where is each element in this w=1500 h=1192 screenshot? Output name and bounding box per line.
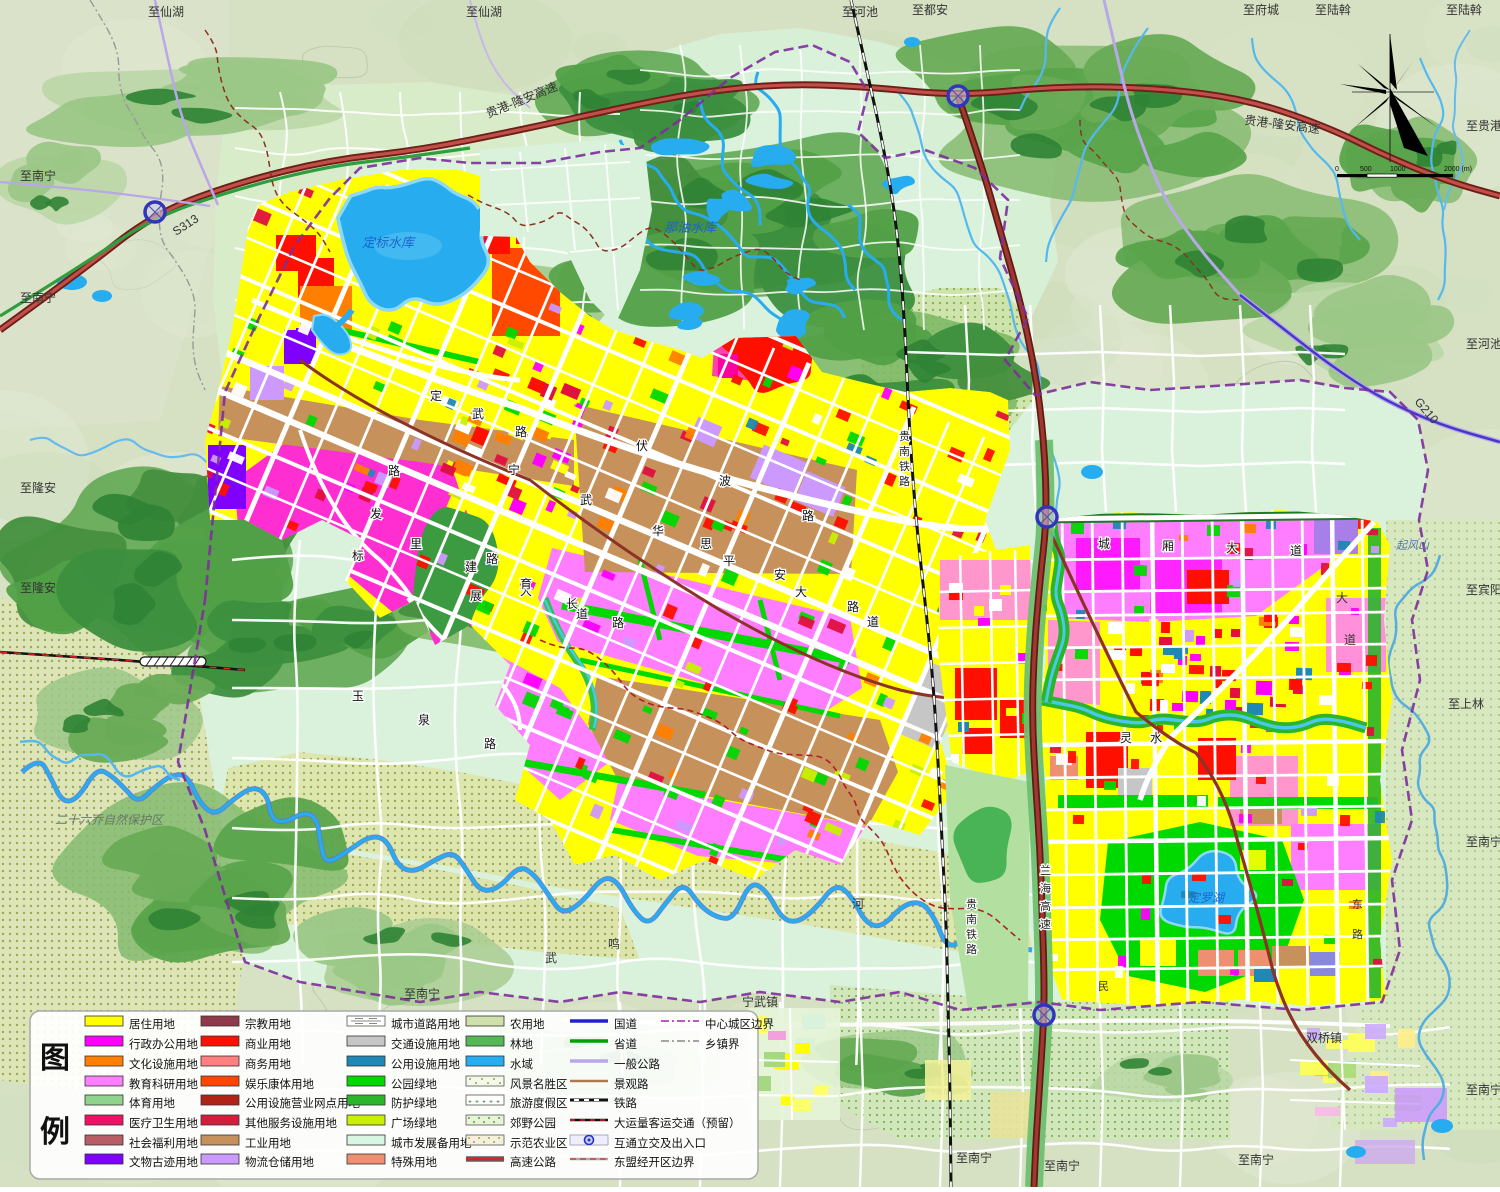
- svg-text:工业用地: 工业用地: [245, 1137, 291, 1150]
- svg-text:路: 路: [966, 943, 977, 956]
- svg-text:公用设施营业网点用地: 公用设施营业网点用地: [245, 1096, 360, 1110]
- svg-text:城: 城: [1098, 537, 1110, 551]
- svg-text:至仙湖: 至仙湖: [148, 4, 184, 19]
- svg-text:至南宁: 至南宁: [956, 1150, 992, 1165]
- svg-text:教育科研用地: 教育科研用地: [129, 1077, 198, 1091]
- svg-text:定标水库: 定标水库: [362, 235, 416, 250]
- svg-text:道: 道: [1290, 544, 1302, 558]
- svg-text:铁: 铁: [966, 928, 977, 941]
- svg-text:建: 建: [465, 560, 477, 574]
- svg-text:农用地: 农用地: [510, 1017, 545, 1031]
- svg-text:至南宁: 至南宁: [1238, 1152, 1274, 1167]
- svg-text:文物古迹用地: 文物古迹用地: [129, 1155, 198, 1169]
- svg-text:至隆安: 至隆安: [20, 580, 56, 595]
- svg-text:路: 路: [388, 463, 400, 478]
- svg-text:体育用地: 体育用地: [129, 1096, 175, 1110]
- svg-text:至宾阳: 至宾阳: [1466, 582, 1500, 597]
- svg-text:安: 安: [774, 567, 786, 582]
- svg-text:路: 路: [515, 424, 527, 439]
- svg-text:灵: 灵: [1120, 731, 1132, 745]
- svg-text:铁路: 铁路: [614, 1096, 637, 1110]
- svg-text:郊野公园: 郊野公园: [510, 1117, 556, 1130]
- svg-text:旅游度假区: 旅游度假区: [510, 1096, 568, 1110]
- svg-text:广场绿地: 广场绿地: [391, 1116, 437, 1130]
- svg-text:至南宁: 至南宁: [1044, 1158, 1080, 1173]
- svg-text:至府城: 至府城: [1243, 2, 1279, 17]
- svg-text:南: 南: [899, 445, 910, 458]
- svg-text:2000 (m): 2000 (m): [1444, 166, 1472, 173]
- svg-text:乡镇界: 乡镇界: [705, 1037, 740, 1051]
- svg-text:展: 展: [470, 589, 482, 603]
- svg-text:武: 武: [580, 493, 592, 507]
- svg-text:医疗卫生用地: 医疗卫生用地: [129, 1116, 198, 1130]
- svg-text:铁: 铁: [899, 460, 910, 473]
- svg-text:路: 路: [612, 615, 624, 630]
- svg-text:防护绿地: 防护绿地: [391, 1096, 437, 1110]
- svg-text:大: 大: [795, 585, 807, 599]
- svg-text:里: 里: [410, 537, 422, 551]
- svg-text:大: 大: [1226, 541, 1238, 555]
- svg-text:文化设施用地: 文化设施用地: [129, 1057, 198, 1071]
- svg-text:思: 思: [700, 537, 712, 551]
- svg-text:行政办公用地: 行政办公用地: [129, 1037, 198, 1051]
- svg-text:水域: 水域: [510, 1058, 533, 1071]
- svg-text:至南宁: 至南宁: [20, 168, 56, 183]
- svg-text:至陆斡: 至陆斡: [1446, 2, 1482, 17]
- svg-text:路: 路: [802, 508, 814, 523]
- svg-text:公用设施用地: 公用设施用地: [391, 1058, 460, 1071]
- svg-text:一般公路: 一般公路: [614, 1057, 660, 1071]
- svg-text:水: 水: [1150, 731, 1162, 745]
- svg-text:至南宁: 至南宁: [1466, 1082, 1500, 1097]
- svg-text:中心城区边界: 中心城区边界: [705, 1018, 774, 1031]
- svg-text:至南宁: 至南宁: [1466, 834, 1500, 849]
- svg-text:至隆安: 至隆安: [20, 480, 56, 495]
- svg-text:平: 平: [723, 554, 735, 568]
- svg-text:南: 南: [966, 913, 977, 926]
- svg-text:居住用地: 居住用地: [129, 1017, 175, 1031]
- svg-text:城市道路用地: 城市道路用地: [391, 1017, 460, 1031]
- svg-text:商业用地: 商业用地: [245, 1037, 291, 1051]
- svg-text:鸣: 鸣: [608, 936, 620, 951]
- svg-text:0: 0: [1335, 166, 1339, 173]
- svg-text:示范农业区: 示范农业区: [510, 1136, 568, 1150]
- svg-text:贵: 贵: [899, 430, 910, 443]
- svg-text:省道: 省道: [614, 1037, 637, 1051]
- svg-text:公园绿地: 公园绿地: [391, 1077, 437, 1091]
- svg-text:民: 民: [1098, 981, 1109, 993]
- svg-text:其他服务设施用地: 其他服务设施用地: [245, 1116, 337, 1130]
- svg-text:双桥镇: 双桥镇: [1306, 1031, 1342, 1045]
- svg-text:波: 波: [719, 474, 731, 488]
- svg-text:发: 发: [370, 506, 382, 521]
- svg-text:至上林: 至上林: [1448, 697, 1484, 711]
- svg-text:兰: 兰: [1040, 864, 1051, 877]
- svg-text:大: 大: [1336, 591, 1348, 605]
- svg-text:路: 路: [484, 736, 496, 751]
- svg-text:起风山: 起风山: [1396, 539, 1430, 552]
- svg-text:景观路: 景观路: [614, 1077, 649, 1091]
- svg-text:至贵港: 至贵港: [1466, 119, 1500, 133]
- svg-text:长: 长: [566, 597, 578, 611]
- svg-text:至陆斡: 至陆斡: [1315, 2, 1351, 17]
- svg-text:特殊用地: 特殊用地: [391, 1155, 437, 1169]
- svg-text:1000: 1000: [1390, 166, 1406, 173]
- svg-text:至河池: 至河池: [842, 5, 878, 19]
- svg-text:速: 速: [1040, 918, 1051, 931]
- svg-text:例: 例: [40, 1116, 70, 1149]
- svg-text:至南宁: 至南宁: [404, 986, 440, 1001]
- svg-text:路: 路: [486, 551, 498, 566]
- svg-text:至河池: 至河池: [1466, 337, 1500, 351]
- svg-text:路: 路: [1352, 928, 1363, 941]
- svg-text:宁: 宁: [508, 462, 520, 477]
- svg-text:国道: 国道: [614, 1017, 637, 1031]
- svg-text:华: 华: [652, 524, 664, 538]
- svg-text:二十六乔自然保护区: 二十六乔自然保护区: [55, 813, 165, 827]
- svg-text:林地: 林地: [510, 1037, 533, 1051]
- svg-text:图: 图: [40, 1042, 70, 1075]
- svg-text:500: 500: [1360, 166, 1372, 173]
- svg-text:那油水库: 那油水库: [664, 220, 718, 235]
- svg-text:贵: 贵: [966, 898, 977, 911]
- svg-text:玉: 玉: [352, 689, 364, 703]
- svg-text:交通设施用地: 交通设施用地: [391, 1037, 460, 1051]
- svg-text:定罗湖: 定罗湖: [1188, 891, 1226, 905]
- svg-text:至都安: 至都安: [912, 2, 948, 17]
- svg-text:东: 东: [1352, 898, 1363, 911]
- svg-text:道: 道: [1344, 633, 1356, 647]
- svg-text:宁武镇: 宁武镇: [742, 994, 778, 1009]
- svg-text:定: 定: [430, 388, 442, 403]
- svg-text:商务用地: 商务用地: [245, 1057, 291, 1071]
- svg-text:宗教用地: 宗教用地: [245, 1017, 291, 1031]
- svg-text:物流仓储用地: 物流仓储用地: [245, 1155, 314, 1169]
- svg-text:厢: 厢: [1162, 539, 1174, 553]
- svg-text:大运量客运交通（预留）: 大运量客运交通（预留）: [614, 1116, 741, 1130]
- svg-text:城市发展备用地: 城市发展备用地: [391, 1136, 472, 1150]
- svg-text:武: 武: [545, 951, 557, 965]
- svg-text:东盟经开区边界: 东盟经开区边界: [614, 1156, 695, 1169]
- svg-text:路: 路: [899, 475, 910, 488]
- svg-text:路: 路: [847, 599, 859, 614]
- svg-text:风景名胜区: 风景名胜区: [510, 1077, 568, 1091]
- svg-text:育: 育: [520, 576, 532, 591]
- svg-text:社会福利用地: 社会福利用地: [129, 1136, 198, 1150]
- svg-text:伏: 伏: [636, 439, 648, 453]
- svg-text:河: 河: [852, 897, 864, 911]
- svg-text:泉: 泉: [418, 713, 430, 727]
- svg-text:至仙湖: 至仙湖: [466, 4, 502, 19]
- svg-text:互通立交及出入口: 互通立交及出入口: [614, 1136, 706, 1150]
- svg-text:武: 武: [472, 407, 484, 421]
- svg-text:高: 高: [1040, 899, 1051, 913]
- svg-text:高速公路: 高速公路: [510, 1155, 556, 1169]
- svg-text:至南宁: 至南宁: [20, 290, 56, 305]
- svg-text:标: 标: [352, 549, 364, 563]
- svg-text:娱乐康体用地: 娱乐康体用地: [245, 1077, 314, 1091]
- svg-text:道: 道: [867, 615, 879, 629]
- svg-text:海: 海: [1040, 881, 1051, 895]
